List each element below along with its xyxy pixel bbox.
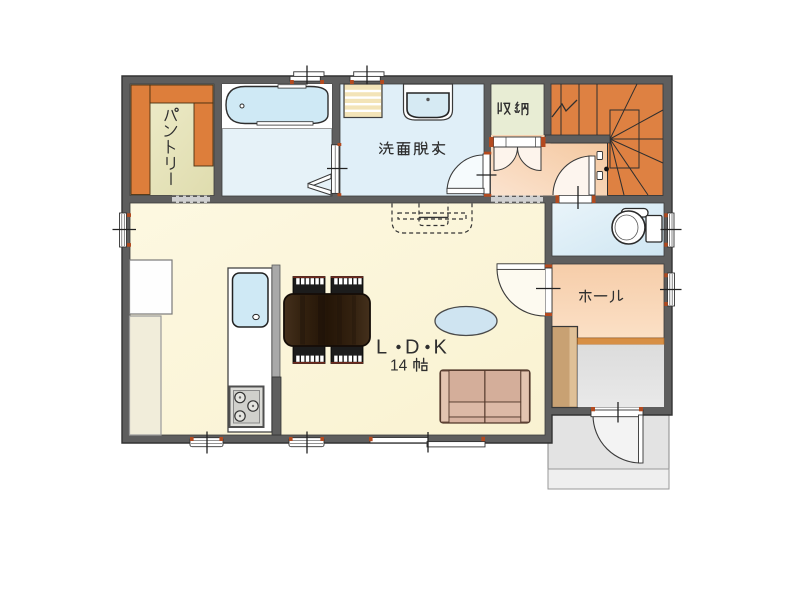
svg-text:K: K bbox=[434, 337, 448, 359]
svg-text:L: L bbox=[376, 337, 389, 359]
svg-text:D: D bbox=[405, 337, 419, 359]
svg-text:14: 14 bbox=[390, 358, 408, 375]
